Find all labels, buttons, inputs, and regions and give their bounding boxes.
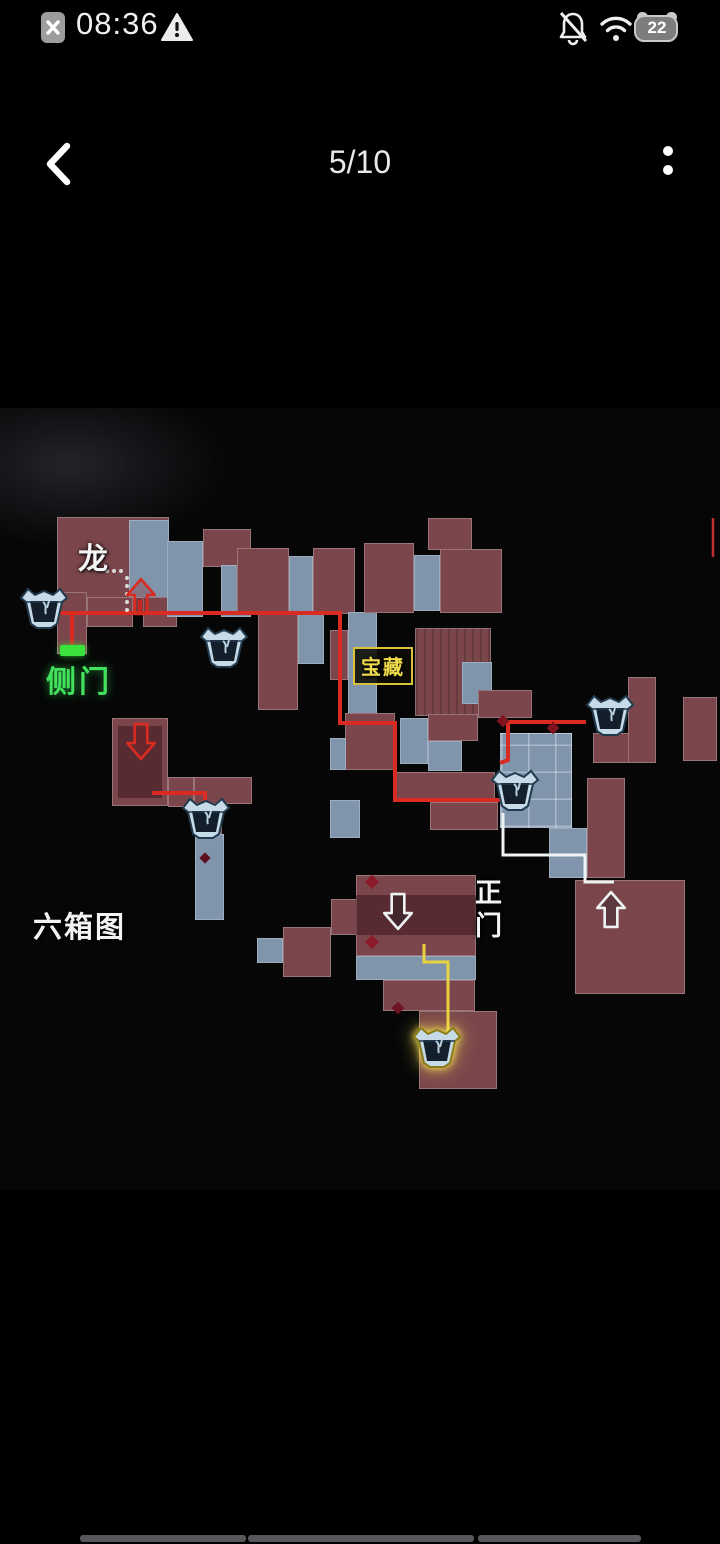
treasure-chest-icon bbox=[584, 692, 636, 736]
map-room bbox=[428, 518, 472, 550]
map-room bbox=[395, 772, 495, 802]
map-room bbox=[478, 690, 532, 718]
map-room bbox=[414, 555, 440, 611]
treasure-chest-icon-highlighted bbox=[411, 1024, 463, 1068]
map-room bbox=[258, 614, 298, 710]
map-room bbox=[345, 713, 395, 770]
map-image[interactable] bbox=[0, 408, 720, 1190]
gesture-bar-segment bbox=[248, 1535, 474, 1542]
map-room bbox=[195, 834, 224, 920]
map-room bbox=[289, 556, 313, 614]
map-room bbox=[440, 549, 502, 613]
map-room-shadow bbox=[356, 895, 476, 935]
map-room bbox=[575, 880, 685, 994]
red-up-arrow-icon bbox=[126, 577, 156, 616]
map-room bbox=[330, 630, 348, 680]
side-door-marker bbox=[60, 645, 85, 656]
map-room bbox=[430, 802, 498, 830]
map-room bbox=[428, 714, 478, 741]
map-label-side-door: 侧门 bbox=[46, 657, 112, 701]
map-room bbox=[331, 899, 357, 935]
map-label-six-chest-caption: 六箱图 bbox=[33, 904, 126, 946]
map-room bbox=[330, 738, 346, 770]
white-down-arrow-icon bbox=[383, 892, 413, 931]
treasure-chest-icon bbox=[180, 795, 232, 839]
map-room bbox=[167, 541, 203, 617]
map-room bbox=[400, 718, 428, 764]
map-room bbox=[683, 697, 717, 761]
map-room bbox=[587, 778, 625, 878]
map-label-dragon: 龙 bbox=[78, 534, 110, 578]
map-room bbox=[356, 956, 476, 980]
map-label-treasure: 宝藏 bbox=[353, 647, 413, 685]
map-room bbox=[283, 927, 331, 977]
route-paths bbox=[0, 0, 720, 1544]
map-room bbox=[549, 828, 587, 878]
gesture-bar-segment bbox=[80, 1535, 246, 1542]
map-label-main-gate: 正门 bbox=[467, 878, 506, 954]
map-room bbox=[237, 548, 289, 614]
map-room bbox=[364, 543, 414, 613]
map-layer bbox=[0, 0, 720, 1544]
map-room bbox=[298, 614, 324, 664]
red-down-arrow-icon bbox=[126, 722, 156, 761]
map-room bbox=[330, 800, 360, 838]
map-room bbox=[383, 980, 475, 1011]
map-room bbox=[428, 741, 462, 771]
map-room bbox=[257, 938, 283, 963]
treasure-chest-icon bbox=[198, 624, 250, 668]
map-room bbox=[313, 548, 355, 614]
gesture-bar-segment bbox=[478, 1535, 641, 1542]
white-up-arrow-icon bbox=[596, 890, 626, 929]
treasure-chest-icon bbox=[18, 585, 70, 629]
treasure-chest-icon bbox=[489, 767, 541, 811]
